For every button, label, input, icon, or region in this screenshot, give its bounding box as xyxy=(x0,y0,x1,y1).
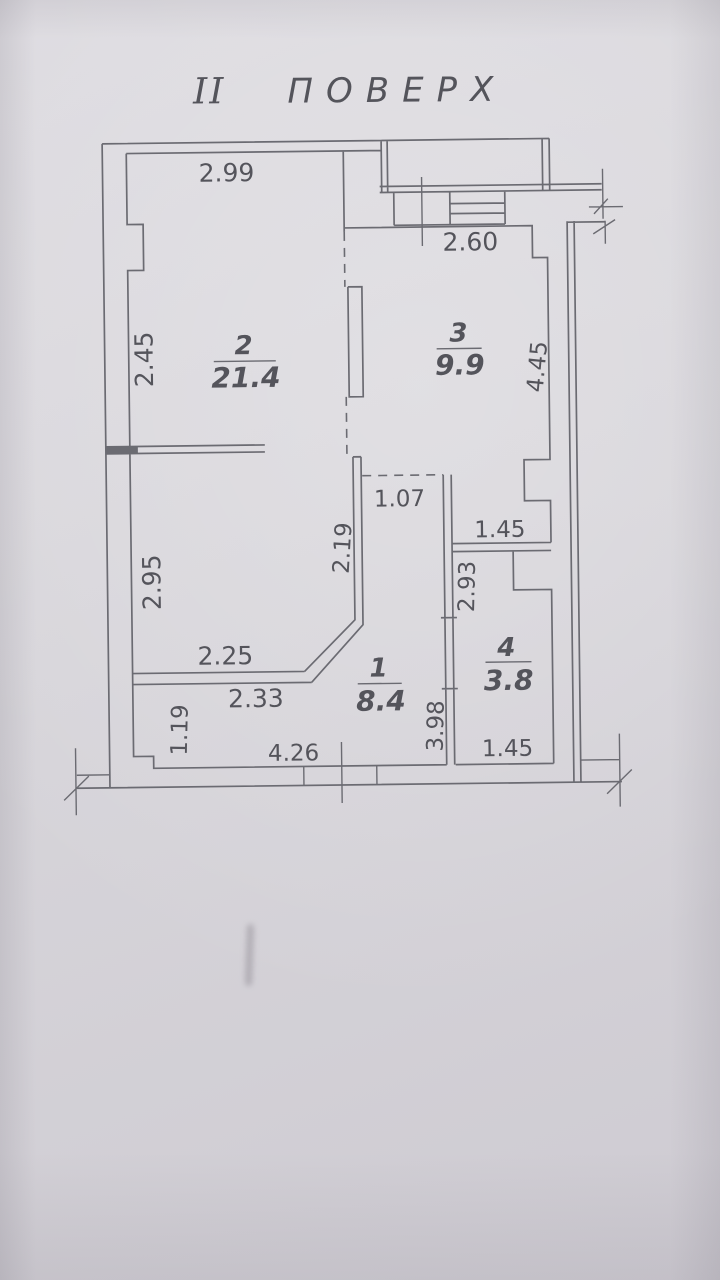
room-3-number: 3 xyxy=(449,318,467,348)
dim-room2-bottom: 2.25 xyxy=(197,641,253,671)
dim-room3-height: 4.45 xyxy=(523,340,554,393)
room-2-area: 21.4 xyxy=(211,361,280,395)
dim-left-lower: 2.95 xyxy=(137,554,167,610)
dim-room4-width: 1.45 xyxy=(482,736,534,763)
dim-room3-passage-width: 1.45 xyxy=(474,517,526,544)
dim-top-width: 2.99 xyxy=(198,158,254,188)
dim-room1-top: 2.33 xyxy=(228,684,284,714)
dim-left-upper: 2.45 xyxy=(129,331,159,387)
dashed-partition-lines xyxy=(344,231,443,476)
wall-pier xyxy=(106,446,138,453)
floor-plan-drawing: 2.99 2.60 1.07 1.45 2.25 2.33 4.26 1.45 … xyxy=(0,0,720,1280)
dim-room1-height: 3.98 xyxy=(423,700,450,752)
room-1-area: 8.4 xyxy=(356,684,406,718)
dim-room4-height: 2.93 xyxy=(454,561,481,613)
room-4-area: 3.8 xyxy=(484,664,534,698)
scanned-floor-plan-sheet: II ПОВЕРХ 2.99 2.60 1.07 1.45 2.25 2.33 … xyxy=(0,0,720,1280)
room-1-number: 1 xyxy=(369,653,387,683)
dim-entry-width: 2.60 xyxy=(442,227,498,257)
room-3-area: 9.9 xyxy=(435,348,485,382)
room-2-number: 2 xyxy=(234,331,252,361)
dim-opening: 1.07 xyxy=(374,486,426,513)
dim-room1-bottom: 4.26 xyxy=(268,740,320,767)
room-4-number: 4 xyxy=(496,633,515,663)
dim-passage-height: 2.19 xyxy=(329,522,358,575)
dim-left-bottom: 1.19 xyxy=(167,704,194,756)
